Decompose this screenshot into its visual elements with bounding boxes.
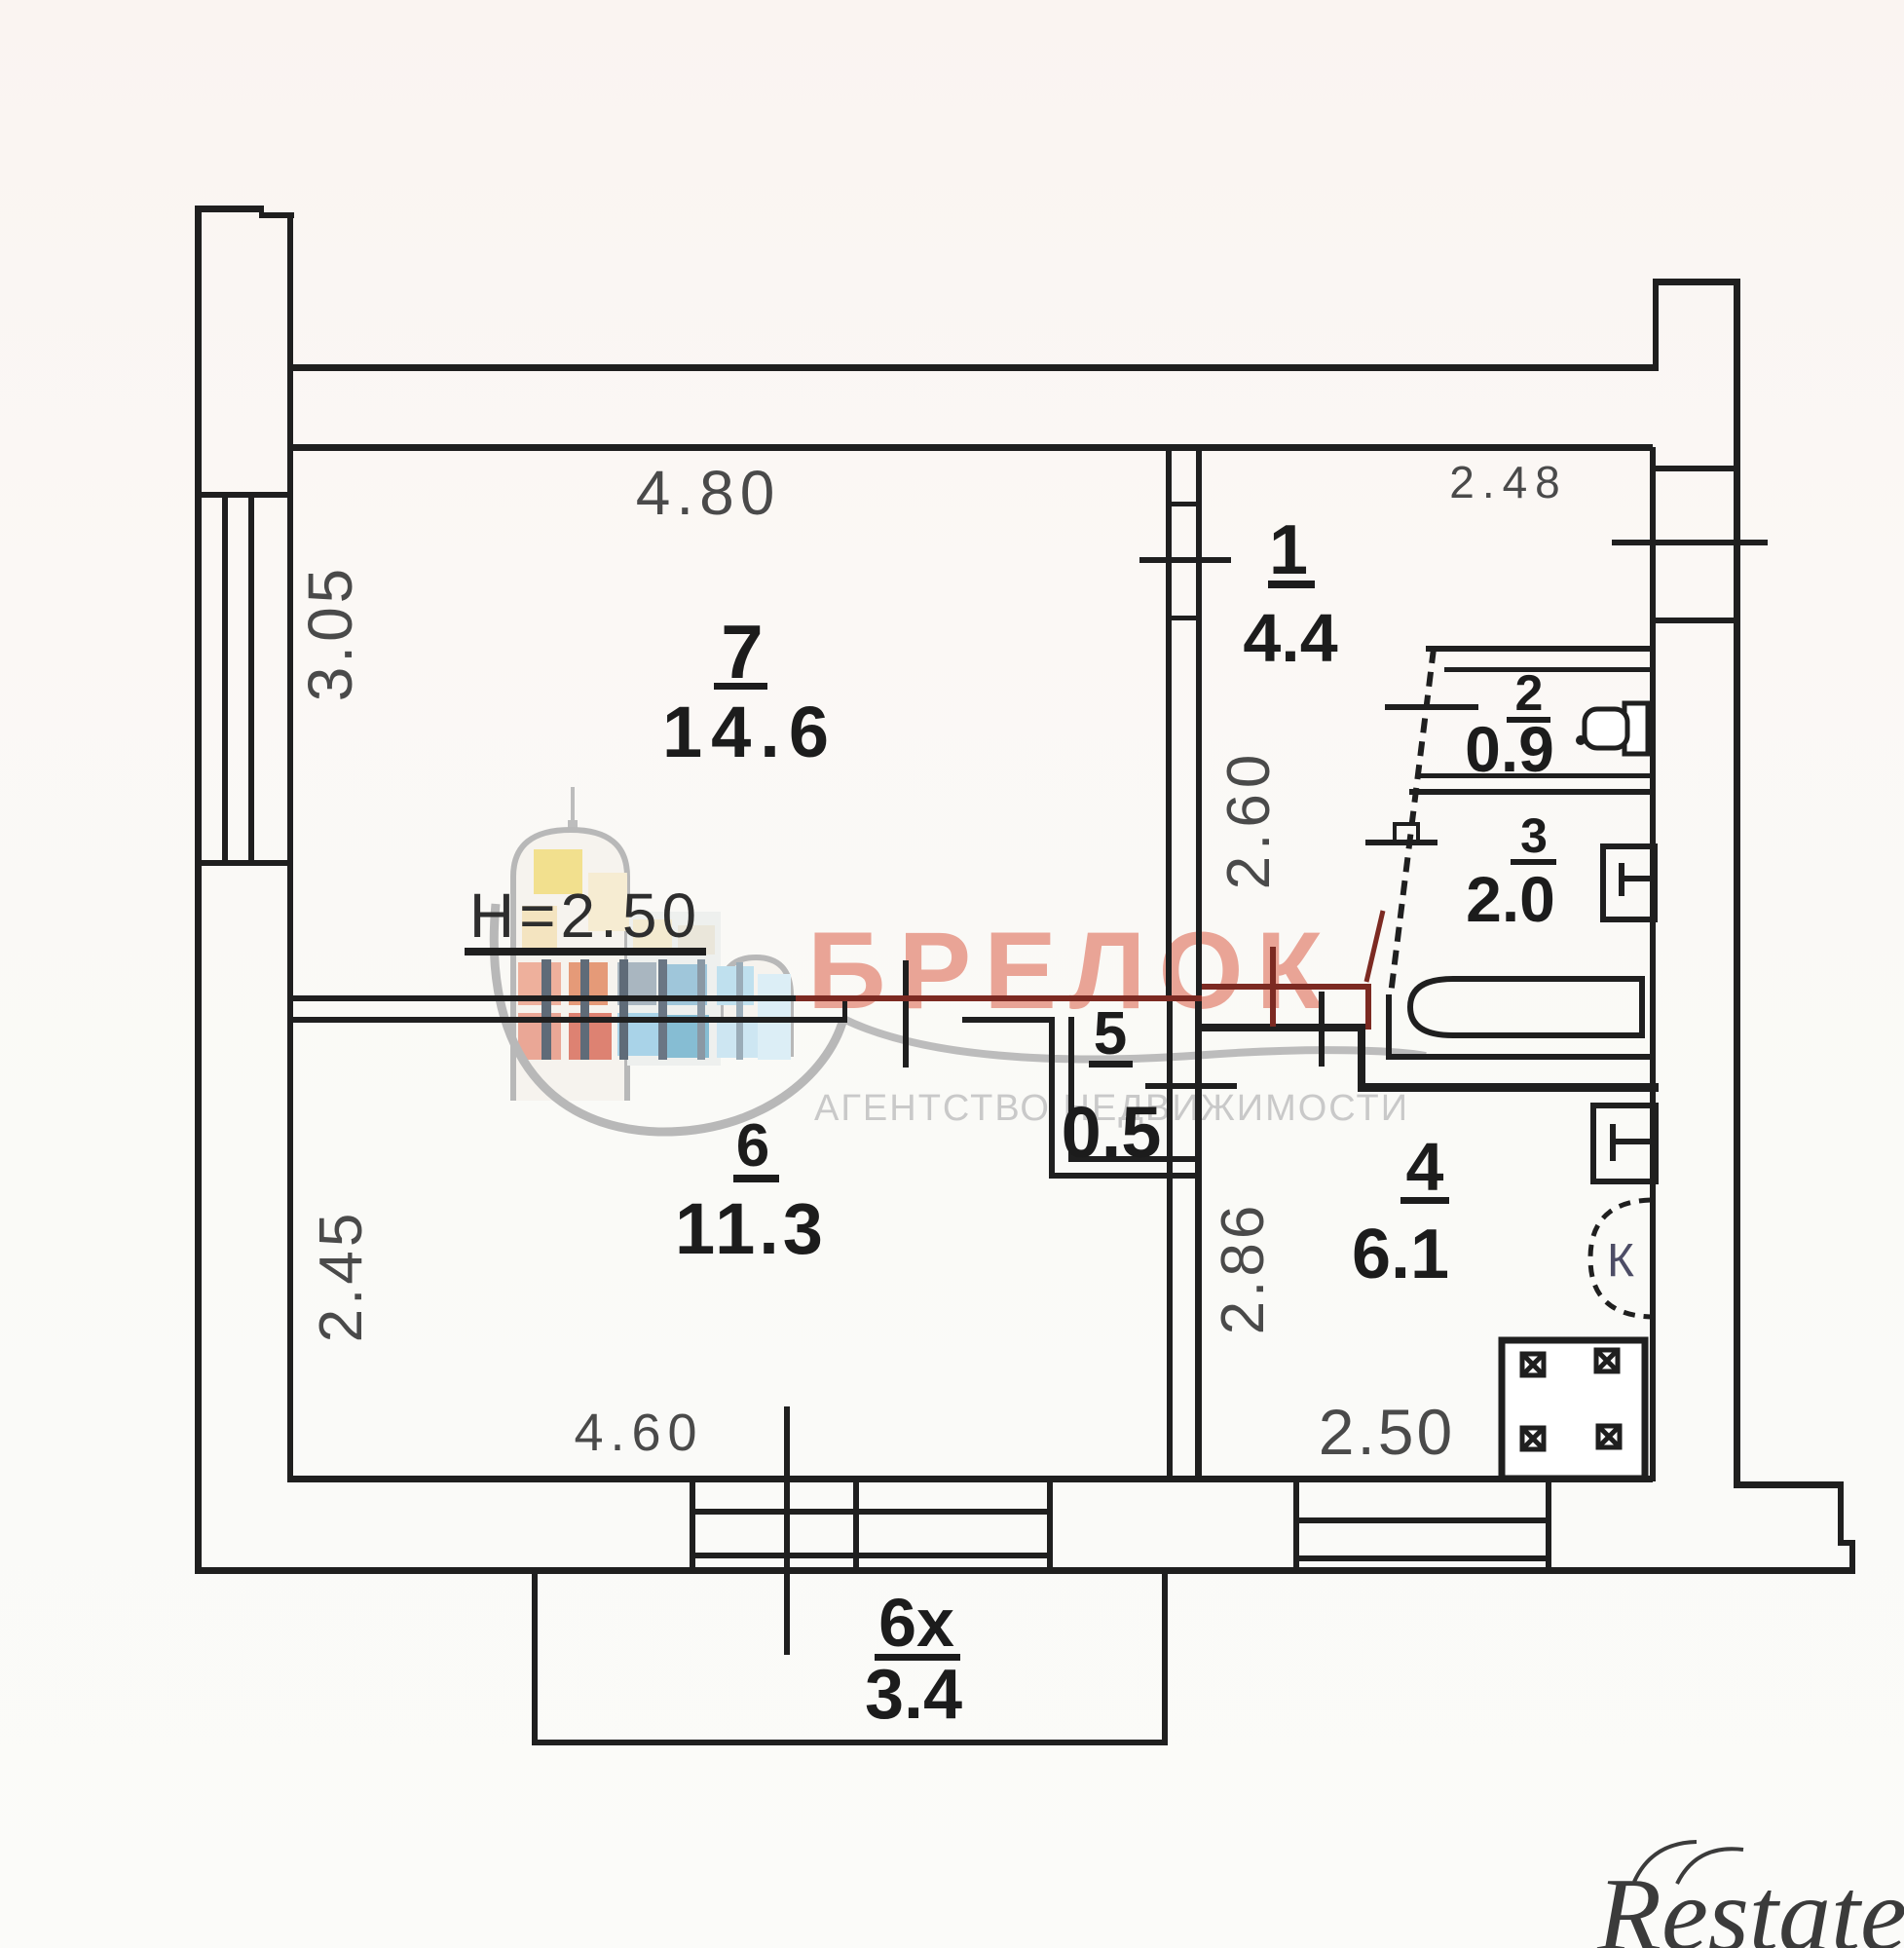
svg-text:2.60: 2.60 <box>1215 749 1283 890</box>
svg-text:6x: 6x <box>878 1585 954 1661</box>
svg-text:1: 1 <box>1269 511 1308 589</box>
svg-text:7: 7 <box>721 609 763 694</box>
svg-text:11.3: 11.3 <box>675 1188 827 1269</box>
svg-text:0.9: 0.9 <box>1465 713 1554 785</box>
svg-text:4.4: 4.4 <box>1243 600 1337 676</box>
svg-text:К: К <box>1607 1235 1634 1287</box>
svg-text:5: 5 <box>1094 1000 1127 1068</box>
svg-text:3: 3 <box>1520 808 1548 863</box>
svg-text:3.4: 3.4 <box>865 1656 962 1734</box>
svg-text:2.86: 2.86 <box>1210 1202 1277 1335</box>
svg-text:4.80: 4.80 <box>636 458 781 528</box>
svg-text:БРЕЛОК: БРЕЛОК <box>807 910 1335 1031</box>
svg-text:Restate: Restate <box>1596 1857 1904 1948</box>
svg-text:2.48: 2.48 <box>1449 457 1568 507</box>
svg-text:6.1: 6.1 <box>1352 1216 1449 1293</box>
svg-text:3.05: 3.05 <box>295 565 365 702</box>
svg-text:4.60: 4.60 <box>574 1404 703 1462</box>
svg-text:H=2.50: H=2.50 <box>469 880 701 951</box>
svg-text:2.0: 2.0 <box>1466 863 1555 935</box>
svg-text:2.45: 2.45 <box>308 1210 375 1343</box>
svg-text:0.5: 0.5 <box>1062 1092 1162 1173</box>
svg-text:14.6: 14.6 <box>662 692 838 772</box>
svg-text:6: 6 <box>736 1112 769 1180</box>
svg-text:4: 4 <box>1406 1129 1444 1205</box>
svg-text:2.50: 2.50 <box>1319 1396 1455 1468</box>
